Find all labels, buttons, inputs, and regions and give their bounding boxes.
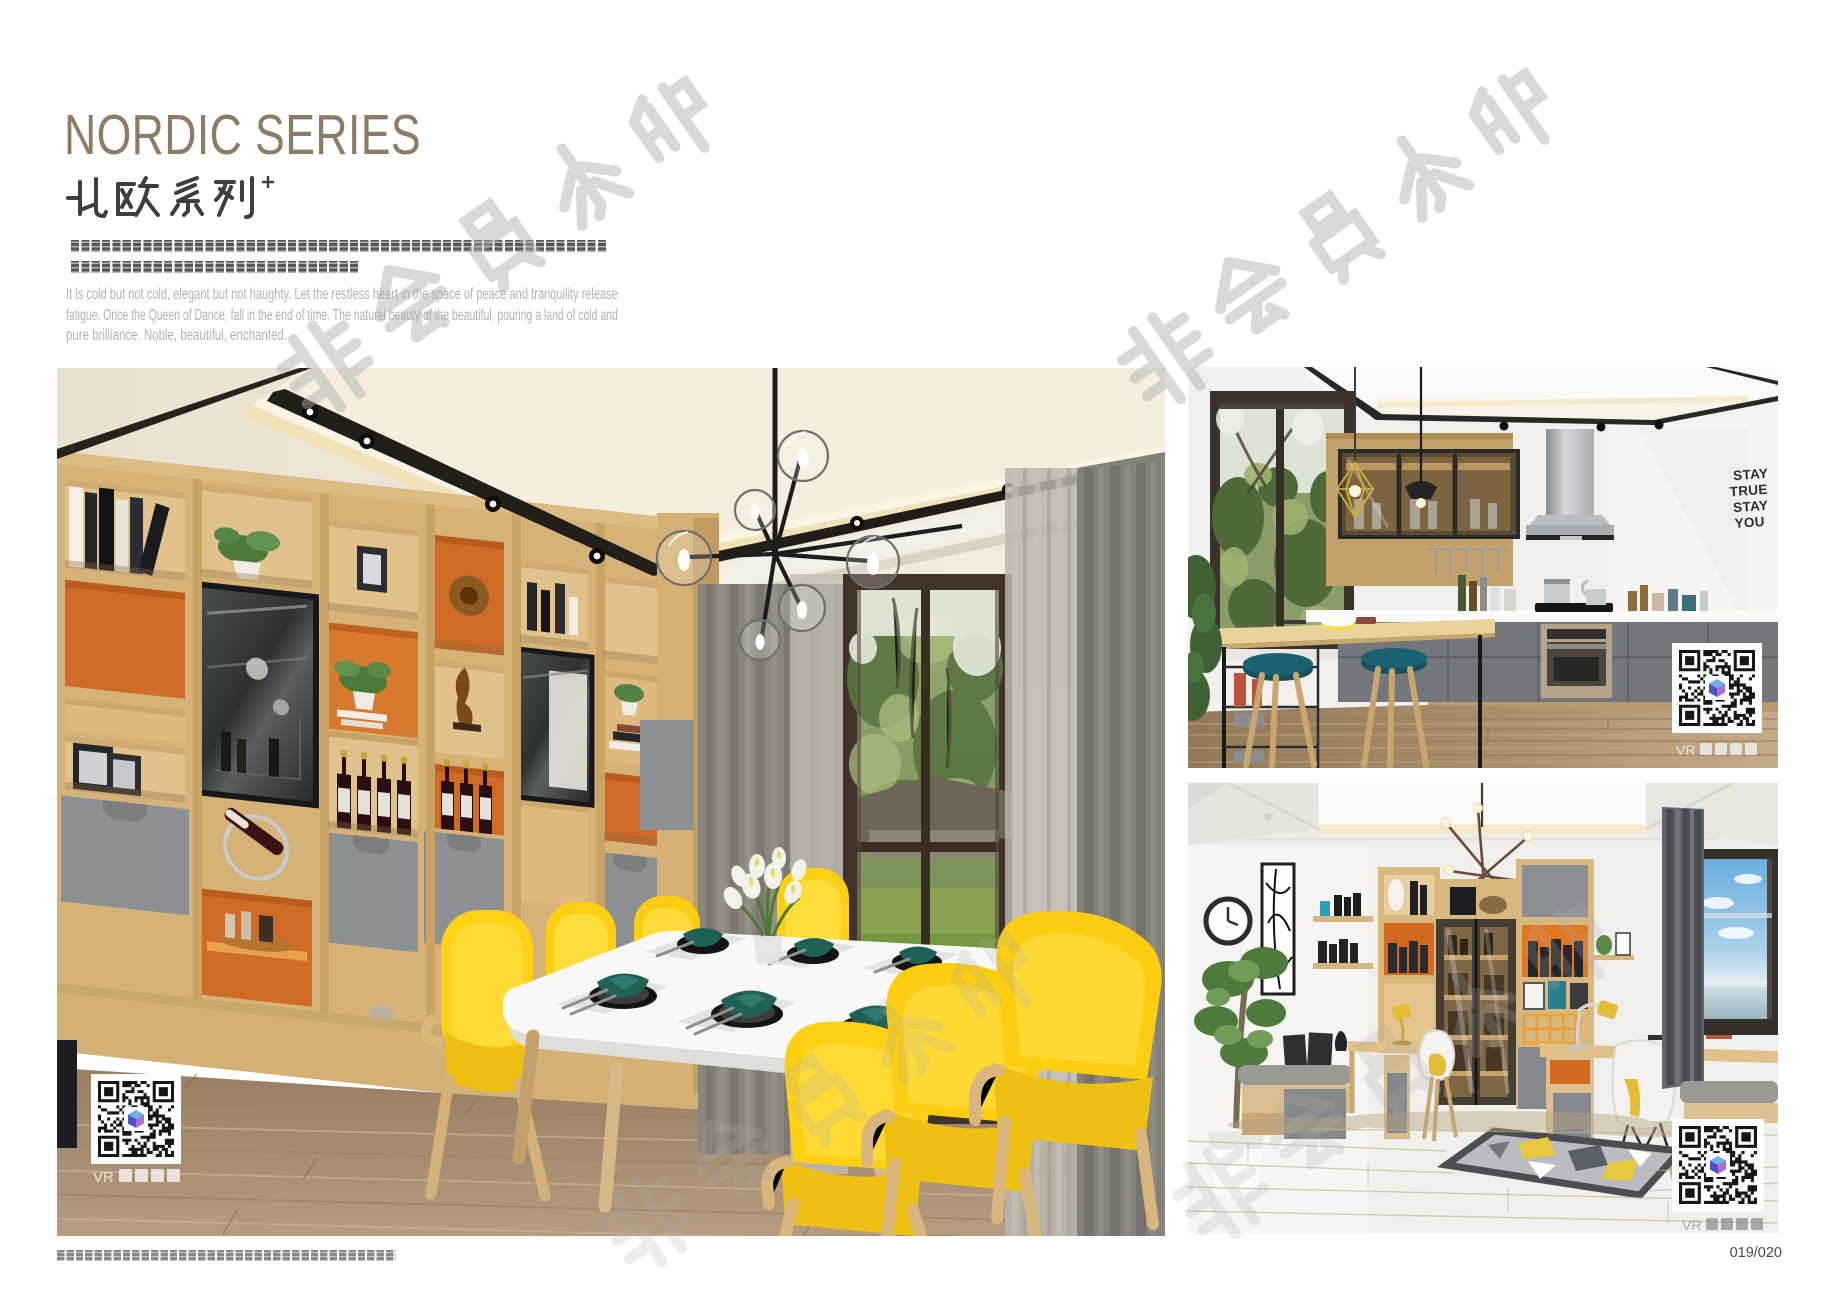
svg-text:YOU: YOU (1734, 514, 1765, 531)
svg-text:STAY: STAY (1733, 498, 1769, 515)
svg-text:STAY: STAY (1733, 466, 1769, 483)
svg-text:VR: VR (1682, 1217, 1701, 1233)
svg-text:VR: VR (1676, 742, 1695, 758)
svg-text:TRUE: TRUE (1729, 482, 1768, 500)
svg-text:VR: VR (93, 1169, 114, 1186)
